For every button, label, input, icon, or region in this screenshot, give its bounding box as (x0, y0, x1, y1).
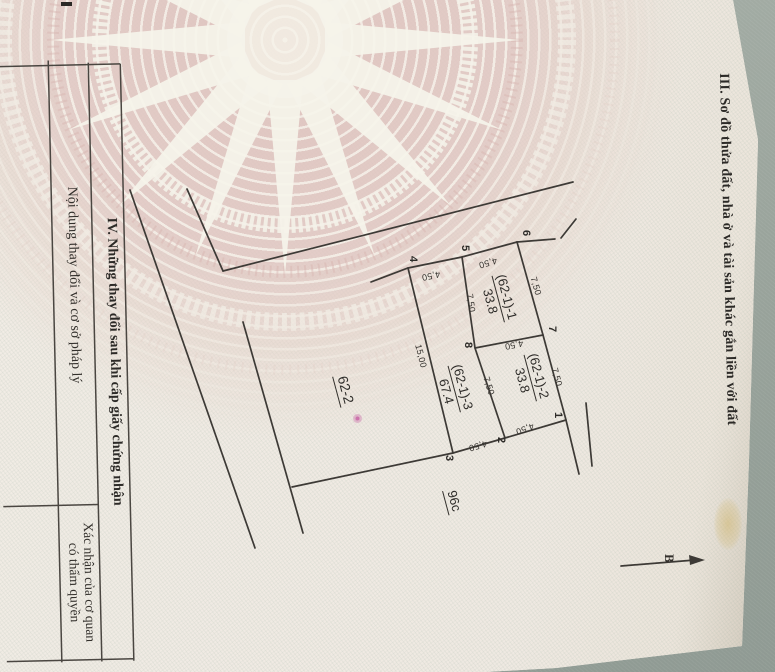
certificate-photo: III. Sơ đồ thửa đất, nhà ở và tài sản kh… (0, 0, 775, 672)
section-iv-title: IV. Những thay đổi sau khi cấp giấy chứn… (99, 64, 128, 659)
column-header-right-line1: Xác nhận của cơ quan (80, 505, 99, 660)
column-header-right: Xác nhận của cơ quan có thẩm quyền (65, 505, 99, 661)
document-content: III. Sơ đồ thửa đất, nhà ở và tài sản kh… (0, 0, 775, 672)
section-iv-texts: IV. Những thay đổi sau khi cấp giấy chứn… (0, 0, 775, 672)
column-header-left: Nội dung thay đổi và cơ sở pháp lý (61, 85, 86, 485)
